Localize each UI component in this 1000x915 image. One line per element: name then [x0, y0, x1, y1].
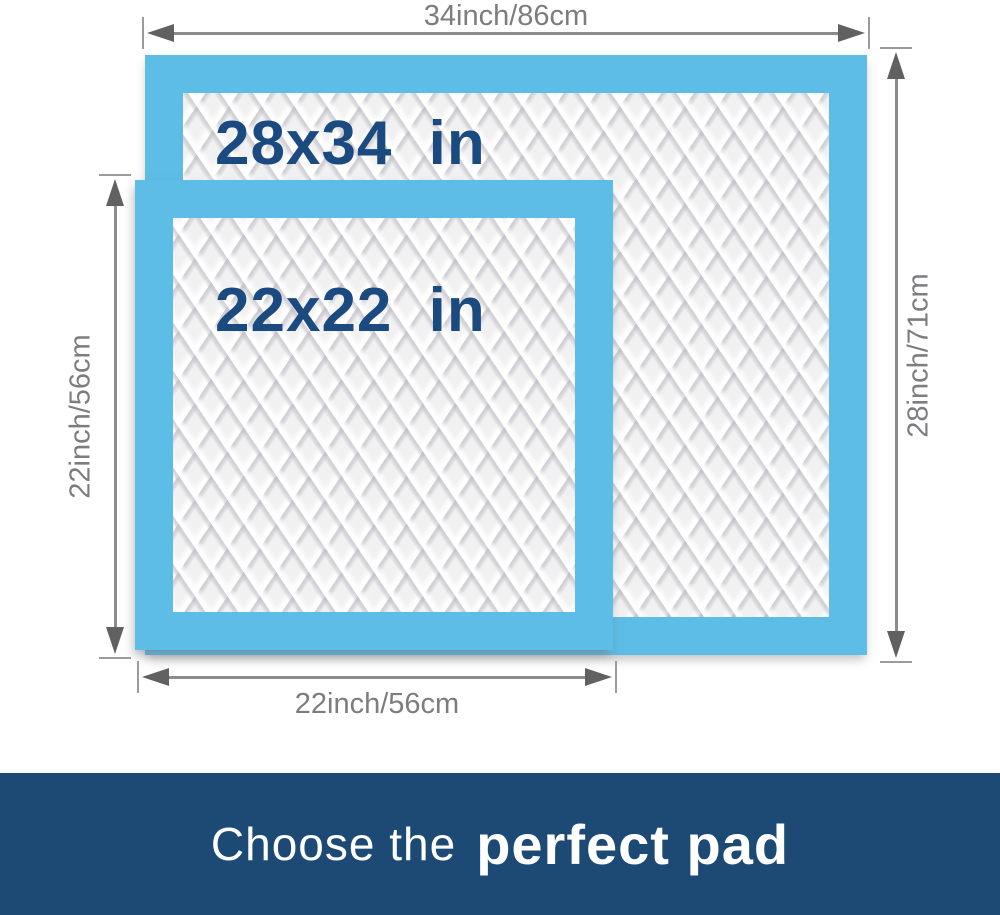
- dimension-arrow-top: [145, 21, 867, 45]
- dimension-tick: [99, 174, 131, 176]
- arrowhead-left-icon: [142, 668, 169, 686]
- pad-size-infographic: 28x34 in 22x22 in 34inch/86cm 28inch/71c…: [0, 0, 1000, 915]
- banner-text-prefix: Choose the: [211, 817, 456, 871]
- pad-small-size-label: 22x22 in: [215, 280, 486, 342]
- banner: Choose the perfect pad: [0, 773, 1000, 915]
- dimension-tick: [99, 657, 131, 659]
- dimension-label-left-text: 22inch/56cm: [67, 334, 96, 498]
- dimension-tick: [880, 47, 912, 49]
- banner-text-emphasis: perfect pad: [476, 812, 789, 877]
- arrowhead-right-icon: [585, 668, 612, 686]
- dimension-label-right-text: 28inch/71cm: [905, 273, 934, 437]
- arrowhead-right-icon: [838, 24, 865, 42]
- arrowhead-down-icon: [106, 627, 124, 654]
- dimension-tick: [142, 17, 144, 49]
- arrowhead-left-icon: [147, 24, 174, 42]
- dimension-arrow-left: [103, 177, 127, 656]
- dimension-arrow-bottom: [140, 665, 614, 689]
- dimension-label-left: 22inch/56cm: [63, 177, 99, 656]
- dimension-label-bottom: 22inch/56cm: [140, 690, 614, 719]
- dimension-tick: [137, 661, 139, 693]
- pad-large-size-label: 28x34 in: [215, 113, 486, 175]
- arrowhead-up-icon: [106, 179, 124, 206]
- dimension-line: [114, 185, 117, 648]
- dimension-line: [148, 676, 606, 679]
- dimension-tick: [615, 661, 617, 693]
- dimension-label-right: 28inch/71cm: [901, 50, 937, 660]
- dimension-tick: [868, 17, 870, 49]
- dimension-line: [895, 58, 898, 652]
- dimension-tick: [880, 661, 912, 663]
- dimension-line: [153, 32, 859, 35]
- pad-small: 22x22 in: [135, 180, 613, 650]
